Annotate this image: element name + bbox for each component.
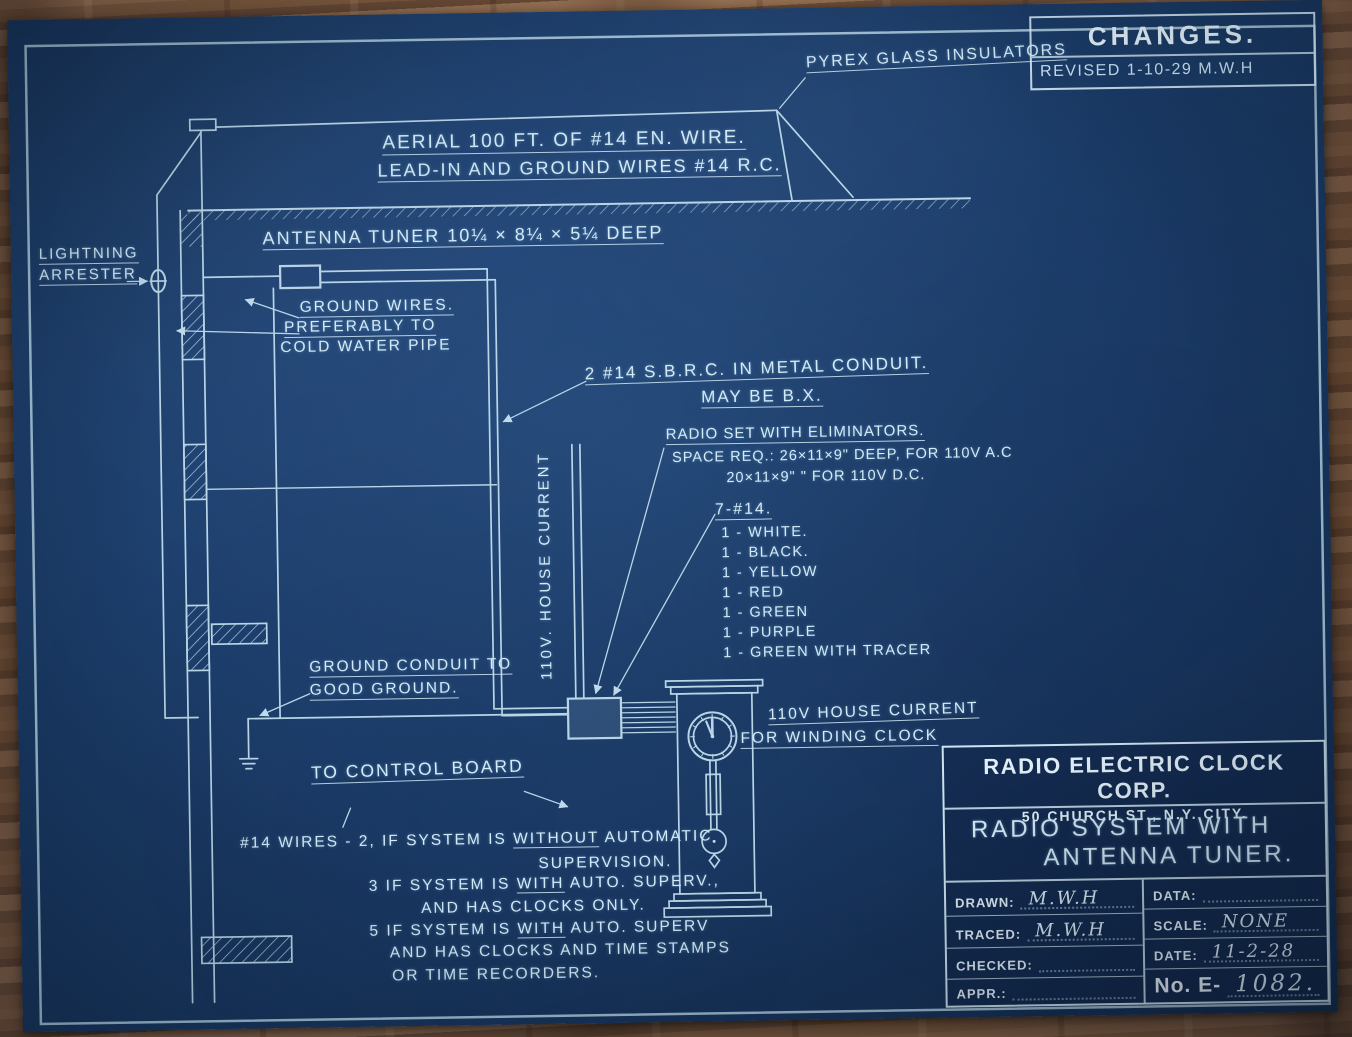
title-block-right-column: DATA: SCALE: NONE DATE: 11-2-28 No. E- 1… — [1144, 877, 1328, 1004]
wall-ledge — [212, 623, 267, 644]
title-block-drawing-title-row: RADIO SYSTEM WITH ANTENNA TUNER. — [945, 802, 1326, 881]
date-cell: DATE: 11-2-28 — [1145, 937, 1327, 970]
blueprint-sheet: CHANGES. REVISED 1-10-29 M.W.H PYREX GLA… — [7, 0, 1338, 1032]
ground-wires-label-line3: COLD WATER PIPE — [280, 336, 452, 357]
lightning-arrester-label-line2: ARRESTER — [39, 265, 137, 284]
seven-wires-title: 7-#14. — [715, 500, 773, 519]
scale-cell: SCALE: NONE — [1144, 907, 1326, 940]
ground-wires-label-line2: PREFERABLY TO — [284, 317, 437, 337]
checked-label: CHECKED: — [956, 957, 1033, 973]
ground-conduit-label-line2: GOOD GROUND. — [310, 679, 459, 699]
title-block-grid: DRAWN: M.W.H TRACED: M.W.H CHECKED: APPR… — [946, 875, 1328, 1007]
drawn-value: M.W.H — [1028, 888, 1099, 910]
traced-value: M.W.H — [1035, 919, 1106, 941]
drawn-label: DRAWN: — [955, 895, 1015, 911]
company-name: RADIO ELECTRIC CLOCK CORP. — [944, 742, 1325, 807]
floor-line — [207, 485, 497, 490]
mast — [201, 130, 202, 210]
traced-label: TRACED: — [955, 926, 1021, 942]
junction-box — [568, 698, 622, 739]
seven-wires-list: 1 - WHITE. 1 - BLACK. 1 - YELLOW 1 - RED… — [721, 522, 932, 665]
wires-note-line2: SUPERVISION. — [538, 853, 672, 873]
drawing-number-label: No. E- — [1154, 973, 1221, 998]
lightning-arrester-label-line1: LIGHTNING — [39, 244, 139, 263]
drawing-number-cell: No. E- 1082. — [1145, 967, 1328, 1004]
pyrex-insulator-wires — [776, 77, 853, 200]
date-value: 11-2-28 — [1212, 940, 1296, 962]
date-label: DATE: — [1154, 948, 1198, 964]
checked-cell: CHECKED: — [947, 945, 1143, 979]
scale-value: NONE — [1222, 910, 1290, 932]
clock-wires — [621, 702, 675, 733]
drawn-cell: DRAWN: M.W.H — [946, 880, 1143, 917]
changes-title: CHANGES. — [1031, 14, 1314, 58]
ground-conduit-label-line1: GROUND CONDUIT TO — [309, 656, 512, 677]
radio-set-label-line1: RADIO SET WITH ELIMINATORS. — [666, 422, 925, 443]
wall-footing — [202, 936, 292, 963]
clock-weight — [706, 774, 721, 814]
title-block-company-row: RADIO ELECTRIC CLOCK CORP. 50 CHURCH ST.… — [944, 742, 1325, 808]
drawing-title-line2: ANTENNA TUNER. — [1043, 840, 1294, 872]
winding-clock-label-line2: FOR WINDING CLOCK — [740, 727, 938, 748]
title-block: RADIO ELECTRIC CLOCK CORP. 50 CHURCH ST.… — [942, 740, 1330, 1008]
ground-wires-label-line1: GROUND WIRES. — [300, 296, 455, 316]
scale-label: SCALE: — [1153, 918, 1208, 934]
photo-of-blueprint: { "changes": { "title": "CHANGES.", "rev… — [0, 0, 1352, 1037]
changes-box: CHANGES. REVISED 1-10-29 M.W.H — [1029, 12, 1316, 90]
house-current-conduit — [572, 444, 584, 698]
pendulum-finial — [709, 854, 719, 867]
drawing-number-value: 1082. — [1235, 970, 1316, 997]
data-label: DATA: — [1153, 888, 1197, 904]
pendulum-rod — [710, 760, 711, 829]
traced-cell: TRACED: M.W.H — [946, 914, 1142, 948]
title-block-left-column: DRAWN: M.W.H TRACED: M.W.H CHECKED: APPR… — [946, 880, 1146, 1007]
data-cell: DATA: — [1144, 877, 1326, 910]
wire-list-item: 1 - GREEN WITH TRACER — [723, 642, 932, 665]
wires-note-line4: AND HAS CLOCKS ONLY. — [421, 896, 646, 918]
mast-insulator — [190, 119, 216, 130]
conduit-note-line2: MAY BE B.X. — [701, 386, 823, 408]
drawing-title-line1: RADIO SYSTEM WITH — [971, 812, 1272, 845]
roof-line — [188, 198, 970, 220]
radio-set-label-line3: 20×11×9" " FOR 110V D.C. — [726, 467, 925, 486]
wires-note-line7: OR TIME RECORDERS. — [392, 964, 600, 985]
antenna-tuner-box — [203, 266, 320, 290]
appr-label: APPR.: — [956, 986, 1006, 1002]
changes-revised-entry: REVISED 1-10-29 M.W.H — [1032, 54, 1314, 86]
appr-cell: APPR.: — [947, 977, 1143, 1007]
